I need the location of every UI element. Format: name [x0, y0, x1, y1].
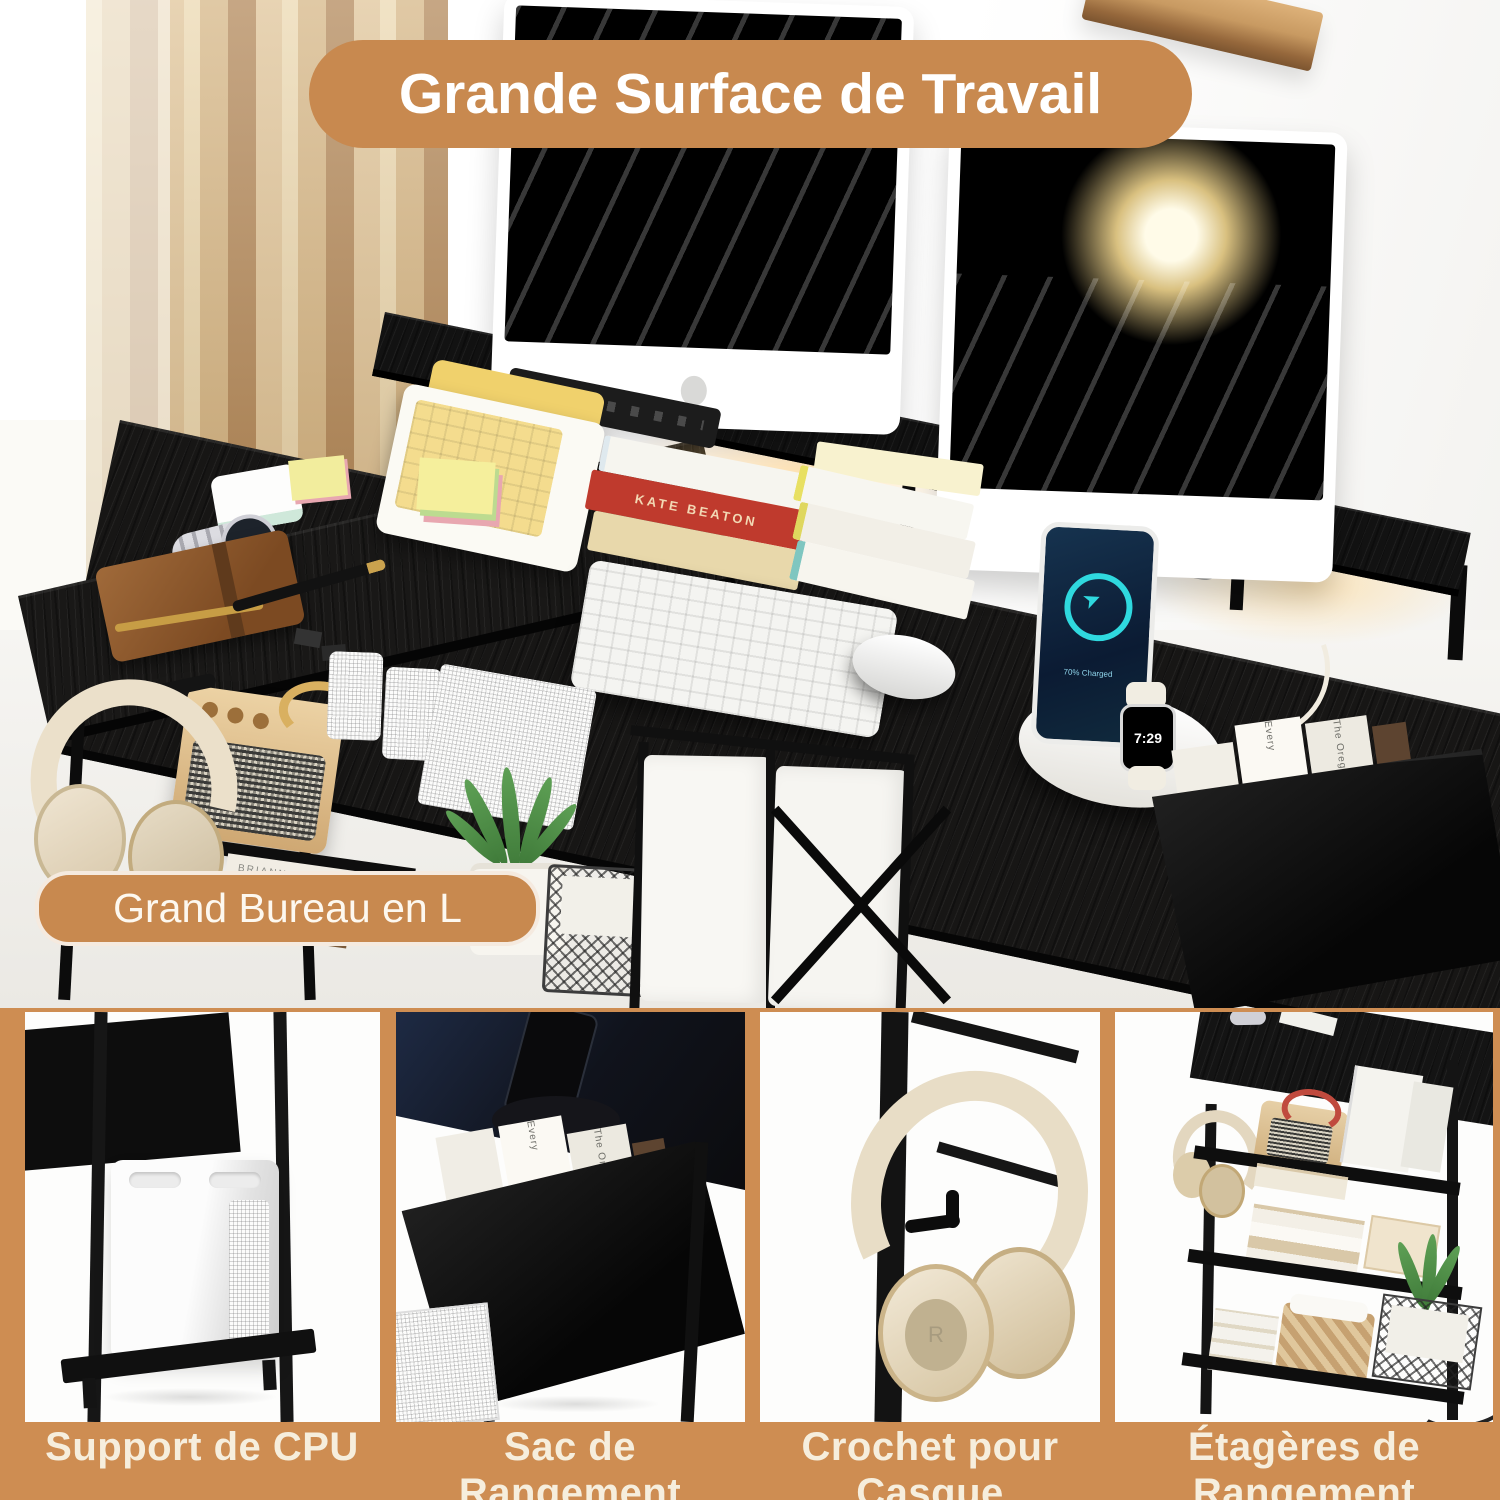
- basket-cloth: [1289, 1293, 1369, 1324]
- sticky-notes: [288, 455, 348, 501]
- storage-cube: [640, 755, 771, 1003]
- feature-label-hook: Crochet pour Casque: [795, 1424, 1065, 1500]
- sticky-notes: [416, 457, 495, 514]
- frame-foot: [262, 1360, 277, 1391]
- notebook-strap: [212, 542, 246, 639]
- headphone-cup: R: [878, 1264, 994, 1402]
- floor-shadow: [456, 1392, 696, 1416]
- wave-foam: [949, 274, 1330, 501]
- feature-panel-cpu: [25, 1012, 380, 1422]
- headphone-marking: R: [928, 1322, 944, 1348]
- feature-label-cpu: Support de CPU: [42, 1424, 362, 1470]
- tower-handle: [209, 1172, 261, 1188]
- feature-panel-shelves: [1115, 1012, 1493, 1422]
- phone-status: 70% Charged: [1039, 666, 1137, 680]
- headphone-cup: [1199, 1164, 1245, 1218]
- product-infographic: KATE BEATON ➤ 70% Charged 7:29: [0, 0, 1500, 1500]
- banner-pill: Grande Surface de Travail: [309, 40, 1192, 148]
- frame-foot: [82, 1378, 97, 1409]
- frame-bar: [911, 1012, 1079, 1063]
- basket-books: [1385, 1305, 1469, 1363]
- feature-panel-hook: R: [760, 1012, 1100, 1422]
- paper-trinket: [1279, 1012, 1338, 1036]
- monitor-right: [934, 119, 1347, 583]
- apple-watch: 7:29: [1120, 704, 1176, 772]
- cup-pad: R: [905, 1299, 967, 1371]
- watch-band: [1128, 766, 1166, 790]
- tower-handle: [129, 1172, 181, 1188]
- watch-trinket: [1230, 1012, 1266, 1025]
- watch-time: 7:29: [1134, 730, 1162, 746]
- wire-basket: [1372, 1293, 1483, 1390]
- floor-shadow: [65, 1384, 315, 1410]
- feature-panel-bag: Every The Oregonian: [396, 1012, 745, 1422]
- radio-knob: [252, 712, 270, 730]
- room-scene: KATE BEATON ➤ 70% Charged 7:29: [0, 0, 1500, 1008]
- mesh-cup: [326, 651, 383, 741]
- cpu-tower: [111, 1160, 279, 1360]
- tower-vent: [229, 1200, 269, 1350]
- feature-label-bag: Sac de Rangement: [390, 1424, 750, 1500]
- monitor-right-screen: [949, 132, 1335, 501]
- feature-label-shelves: Étagères de Rangement: [1169, 1424, 1439, 1500]
- desk-label-text: Grand Bureau en L: [113, 885, 462, 932]
- banner-text: Grande Surface de Travail: [399, 61, 1102, 127]
- desk-label-pill: Grand Bureau en L: [35, 871, 540, 946]
- bag-back-panel: [25, 1012, 241, 1172]
